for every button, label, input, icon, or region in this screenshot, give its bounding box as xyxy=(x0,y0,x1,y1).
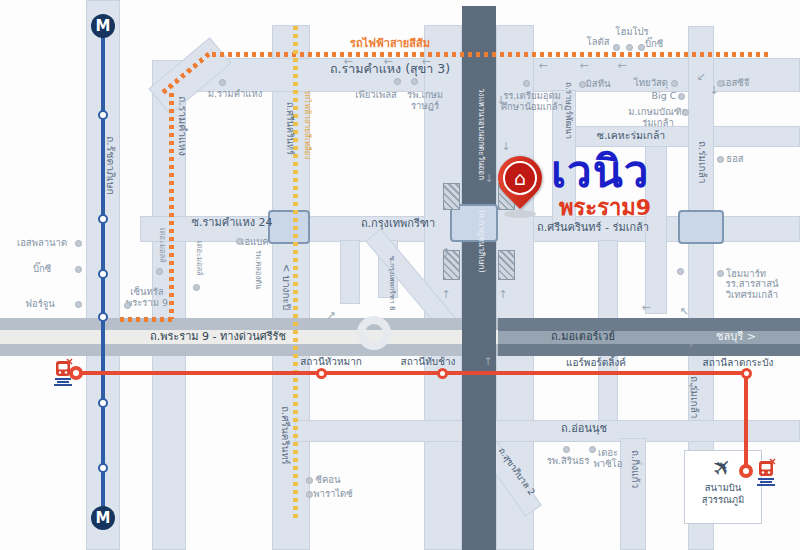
kreetha-soi-a xyxy=(340,240,360,304)
poi-label: เซ็นทรัล พระราม 9 xyxy=(126,286,168,309)
vertical-road-label: รถไฟฟ้าสายสีเหลือง xyxy=(303,90,311,160)
direction-arrow: ↑ xyxy=(441,247,450,258)
airport-name-line2: สุวรรณภูมิ xyxy=(702,494,745,505)
plane-icon: ✈ xyxy=(706,451,739,484)
poi-label: ซีคอน xyxy=(315,474,340,485)
direction-arrow: ← xyxy=(421,56,430,67)
poi-dot xyxy=(124,302,131,309)
airport-name-line1: สนามบิน xyxy=(705,482,741,493)
poi-dot xyxy=(75,301,82,308)
poi-dot xyxy=(156,268,163,275)
poi-dot xyxy=(682,109,689,116)
poi-dot xyxy=(394,78,401,85)
kehha-romklao-road xyxy=(552,126,800,147)
onnut-road xyxy=(295,420,800,442)
direction-arrow: ↑ xyxy=(498,289,507,300)
vertical-road-label: เดอะมอลล์ xyxy=(196,241,204,276)
airport-link-train-icon xyxy=(53,358,75,386)
direction-arrow: ↑ xyxy=(483,356,492,367)
poi-dot xyxy=(626,44,633,51)
poi-dot xyxy=(671,80,678,87)
logo-brand-name: เวนิว xyxy=(551,150,650,194)
u-turn-loop xyxy=(357,316,391,350)
vertical-road-label: ถ.ศรีนครินทร์ xyxy=(285,102,294,155)
poi-dot xyxy=(306,477,313,484)
poi-dot xyxy=(613,44,620,51)
poi-dot xyxy=(523,80,530,87)
airport-link-train-icon xyxy=(756,458,778,486)
road-label: ซ.เคหะร่มเกล้า xyxy=(597,130,665,142)
direction-arrow: ← xyxy=(641,302,650,313)
mrt-station xyxy=(98,214,108,224)
poi-dot xyxy=(563,446,570,453)
mrt-logo: M xyxy=(91,506,115,530)
road-label: สถานีหัวหมาก xyxy=(300,356,362,367)
poi-dot xyxy=(638,44,645,51)
vertical-road-label: ถ.ราษฎร์พัฒนา xyxy=(565,82,574,139)
poi-label: ม.เกษมบัณฑิต ร่มเกล้า xyxy=(628,106,688,129)
direction-arrow: ← xyxy=(383,56,392,67)
airport-box: ✈ สนามบิน สุวรรณภูมิ xyxy=(684,450,762,524)
yellow-line-segment xyxy=(293,26,298,522)
vertical-road-label: ถ.รัชดาภิเษก xyxy=(106,136,117,195)
rama9-south-strip xyxy=(0,344,505,356)
location-pin-icon: ⌂ xyxy=(497,156,543,218)
poi-label: บิ๊กซี xyxy=(645,38,663,49)
poi-label: เดอะ พาซิโอ xyxy=(594,447,623,470)
mrt-station xyxy=(98,269,108,279)
arl-line xyxy=(76,371,746,375)
poi-dot xyxy=(677,268,684,275)
poi-label: โลตัส xyxy=(587,36,610,47)
poi-label: ไทยวัสดุ xyxy=(634,77,668,88)
poi-dot xyxy=(589,446,596,453)
poi-dot xyxy=(678,93,685,100)
road-label: รถไฟฟ้าสายสีส้ม xyxy=(350,38,430,50)
orange-line-segment xyxy=(120,317,176,322)
direction-arrow: ↙ xyxy=(696,71,705,82)
direction-arrow: ↓ xyxy=(501,141,510,152)
road-label: ถ.มอเตอร์เวย์ xyxy=(551,331,615,343)
road-label: ถ.กรุงเทพกรีฑา xyxy=(361,218,435,230)
vertical-road-label: เดอะมอลล์ xyxy=(159,228,167,263)
poi-label: รพ.เกษม ราษฎร์ xyxy=(407,89,443,112)
road-label: สถานีลาดกระบัง xyxy=(703,357,774,368)
poi-label: บิ๊กซี xyxy=(33,263,51,274)
pin-shadow xyxy=(504,210,536,218)
road-label: ถ.ศรีนครินทร์ - ร่มเกล้า xyxy=(537,222,649,234)
poi-label: รร.เตรียมอุดม ศึกษาน้อมเกล้า xyxy=(501,90,563,113)
poi-label: รร.สารสาสน์ วิเทศร่มเกล้า xyxy=(726,278,779,301)
mrt-logo: M xyxy=(91,14,115,38)
overpass-pad xyxy=(443,183,460,210)
vertical-road-label: (ถ.กาญจนาภิเษก) xyxy=(477,210,485,273)
poi-label: พาราไดซ์ xyxy=(313,488,352,499)
vertical-road-label: ถ.กิ่งแก้ว xyxy=(630,450,640,488)
vertical-road-label: รพ.คลองตัน xyxy=(255,250,263,289)
direction-arrow: ← xyxy=(343,56,352,67)
arl-station xyxy=(437,368,448,379)
vertical-road-label: วงแหวนรอบนอกตะวันออก xyxy=(477,88,485,180)
poi-dot xyxy=(579,81,586,88)
vertical-road-label: ถ.รามคำแหง xyxy=(178,96,189,156)
road-label: ชลบุรี > xyxy=(716,331,756,343)
direction-arrow: ← xyxy=(579,60,588,71)
arl-terminus xyxy=(739,464,753,478)
mrt-station xyxy=(98,110,108,120)
direction-arrow: ↓ xyxy=(496,95,505,106)
direction-arrow: ↗ xyxy=(326,310,335,321)
vertical-road-label: ถ.ศรีนครินทร์ xyxy=(280,406,290,465)
poi-label: ฟอร์จูน xyxy=(25,298,55,309)
poi-label: เอสพลานาด xyxy=(17,237,67,248)
rama9-north-strip xyxy=(0,318,505,330)
direction-arrow: ↓ xyxy=(484,173,493,184)
road-label: แอร์พอร์ตลิ้งค์ xyxy=(566,357,626,368)
poi-dot xyxy=(75,240,82,247)
vertical-road-label: ซ.กรุงเทพกรีฑา 8 xyxy=(388,256,395,310)
poi-dot xyxy=(717,156,724,163)
poi-label: รพ.สิรินธร xyxy=(547,455,590,466)
poi-label: เอสซีจี xyxy=(723,77,750,88)
direction-arrow: ↑ xyxy=(441,289,450,300)
road-label: ซ.รามคำแหง 24 xyxy=(191,217,272,229)
poi-dot xyxy=(411,78,418,85)
direction-arrow: ↖ xyxy=(679,306,688,317)
mrt-station xyxy=(98,312,108,322)
poi-label: เพียวเพลส xyxy=(355,89,397,100)
pin-ring: ⌂ xyxy=(503,161,537,195)
poi-label: โฮมโปร xyxy=(615,26,648,37)
bridge-romklao xyxy=(678,210,724,244)
vertical-road-label: < บางกะปิ xyxy=(281,264,291,310)
arl-station xyxy=(316,368,327,379)
vertical-road-label: ถ.ร่มเกล้า xyxy=(697,141,707,183)
poi-label: Big C xyxy=(652,90,677,101)
arl-station xyxy=(741,368,752,379)
poi-label: มิสทีน xyxy=(586,78,611,89)
poi-label: ม.รามคำแหง xyxy=(208,88,263,99)
road-label: ถ.อ่อนนุช xyxy=(561,423,607,435)
map-canvas: ⌂ เวนิว พระราม9 ✈ สนามบิน สุวรรณภูมิ MMร… xyxy=(0,0,800,550)
direction-arrow: ↑ xyxy=(686,338,695,349)
mrt-station xyxy=(98,398,108,408)
bridge-soi24 xyxy=(268,210,310,244)
logo-brand-subtitle: พระราม9 xyxy=(559,197,651,219)
road-label: ถ.พระราม 9 - ทางด่วนศรีรัช xyxy=(150,331,286,343)
poi-dot xyxy=(219,79,226,86)
direction-arrow: ↓ xyxy=(709,85,718,96)
poi-dot xyxy=(717,270,724,277)
poi-dot xyxy=(75,266,82,273)
road-label: สถานีทับช้าง xyxy=(401,356,456,367)
house-icon: ⌂ xyxy=(514,169,526,188)
orange-line-segment xyxy=(169,93,174,319)
direction-arrow: ↑ xyxy=(686,383,695,394)
airport-name: สนามบิน สุวรรณภูมิ xyxy=(685,482,761,507)
arl-line xyxy=(744,373,748,473)
direction-arrow: ← xyxy=(538,60,547,71)
poi-dot xyxy=(236,238,243,245)
poi-label: เอแบค xyxy=(241,236,268,247)
poi-dot xyxy=(306,491,313,498)
poi-label: ธอส xyxy=(726,153,743,164)
direction-arrow: ← xyxy=(617,60,626,71)
poi-dot xyxy=(193,284,200,291)
mrt-station xyxy=(98,463,108,473)
overpass-pad xyxy=(498,250,515,280)
